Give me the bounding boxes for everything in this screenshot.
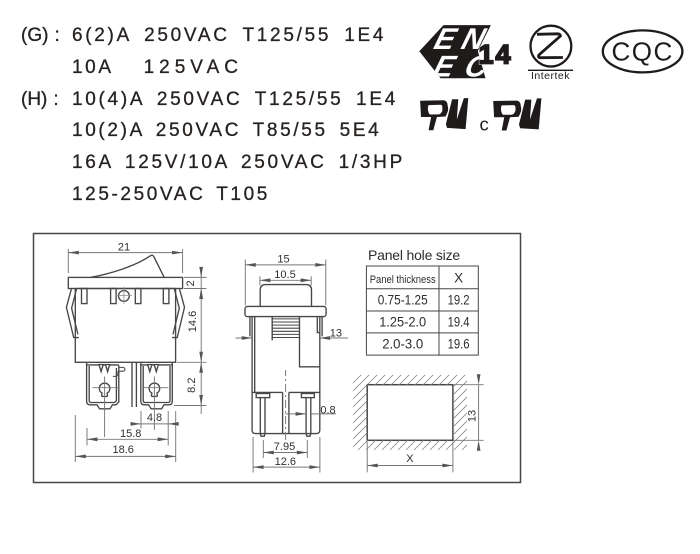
svg-text:Intertek: Intertek: [531, 70, 570, 82]
svg-text:8.2: 8.2: [186, 378, 198, 393]
svg-text:12.6: 12.6: [275, 456, 296, 468]
svg-text:Panel thickness: Panel thickness: [370, 274, 437, 286]
svg-text:15.8: 15.8: [120, 428, 141, 440]
svg-text:1.25-2.0: 1.25-2.0: [379, 314, 426, 329]
svg-text:c: c: [480, 114, 489, 135]
svg-text:19.2: 19.2: [448, 292, 470, 307]
svg-text:X: X: [406, 453, 414, 465]
svg-text:0.75-1.25: 0.75-1.25: [378, 292, 428, 307]
svg-text:2.0-3.0: 2.0-3.0: [382, 336, 423, 351]
svg-text:21: 21: [118, 242, 130, 254]
svg-text:19.6: 19.6: [448, 336, 470, 351]
svg-text:X: X: [454, 271, 463, 286]
svg-text:14: 14: [479, 40, 511, 70]
svg-text:13: 13: [330, 327, 342, 339]
svg-text:15: 15: [277, 253, 289, 265]
svg-text:10.5: 10.5: [274, 269, 295, 281]
svg-text:14.6: 14.6: [187, 311, 199, 332]
svg-text:2: 2: [185, 280, 197, 286]
svg-text:CQC: CQC: [611, 37, 673, 67]
svg-text:Panel hole size: Panel hole size: [368, 247, 460, 263]
svg-text:19.4: 19.4: [448, 314, 470, 329]
svg-text:4.8: 4.8: [147, 412, 162, 424]
svg-text:7.95: 7.95: [274, 441, 295, 453]
svg-text:0.8: 0.8: [320, 404, 335, 416]
svg-text:13: 13: [467, 410, 479, 422]
svg-text:18.6: 18.6: [112, 444, 133, 456]
